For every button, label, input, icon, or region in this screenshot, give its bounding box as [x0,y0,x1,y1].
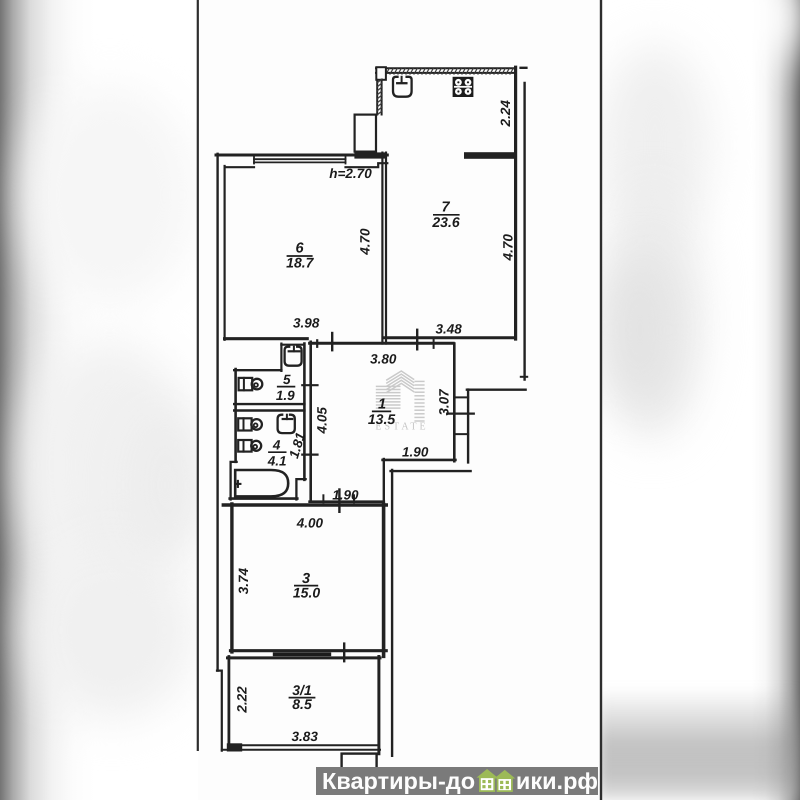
svg-text:23.6: 23.6 [431,214,459,230]
svg-text:3.74: 3.74 [236,567,251,594]
svg-text:1.90: 1.90 [332,488,359,503]
svg-text:5: 5 [283,372,291,387]
svg-text:18.7: 18.7 [286,255,314,271]
svg-text:3.80: 3.80 [370,352,397,367]
svg-text:1.9: 1.9 [276,388,295,403]
svg-text:4.70: 4.70 [500,234,515,262]
svg-text:1.90: 1.90 [402,445,429,460]
svg-text:4.1: 4.1 [267,454,287,469]
svg-text:7: 7 [442,199,451,215]
svg-text:13.5: 13.5 [368,411,395,427]
svg-text:h=2.70: h=2.70 [329,166,372,181]
svg-text:2.24: 2.24 [498,100,513,128]
svg-text:4: 4 [272,438,281,453]
svg-text:3.83: 3.83 [292,729,319,744]
svg-text:4.05: 4.05 [315,407,330,435]
svg-text:2.22: 2.22 [234,686,249,714]
svg-text:4.00: 4.00 [296,516,324,531]
svg-text:3.48: 3.48 [435,322,462,337]
svg-text:3.07: 3.07 [436,388,451,416]
svg-text:3.98: 3.98 [293,315,320,330]
svg-text:15.0: 15.0 [293,584,320,600]
svg-text:4.70: 4.70 [357,228,372,256]
